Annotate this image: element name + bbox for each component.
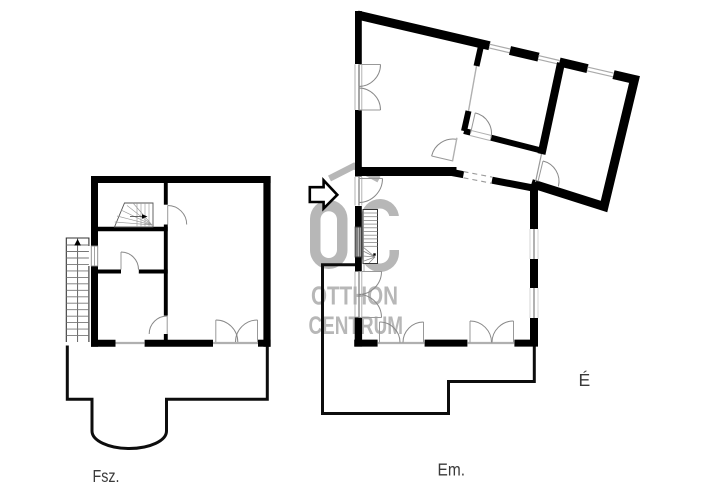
svg-text:Fsz.: Fsz.: [93, 466, 120, 486]
svg-text:Em.: Em.: [438, 460, 466, 480]
svg-text:É: É: [579, 370, 591, 390]
svg-text:OTTHON: OTTHON: [311, 281, 398, 311]
